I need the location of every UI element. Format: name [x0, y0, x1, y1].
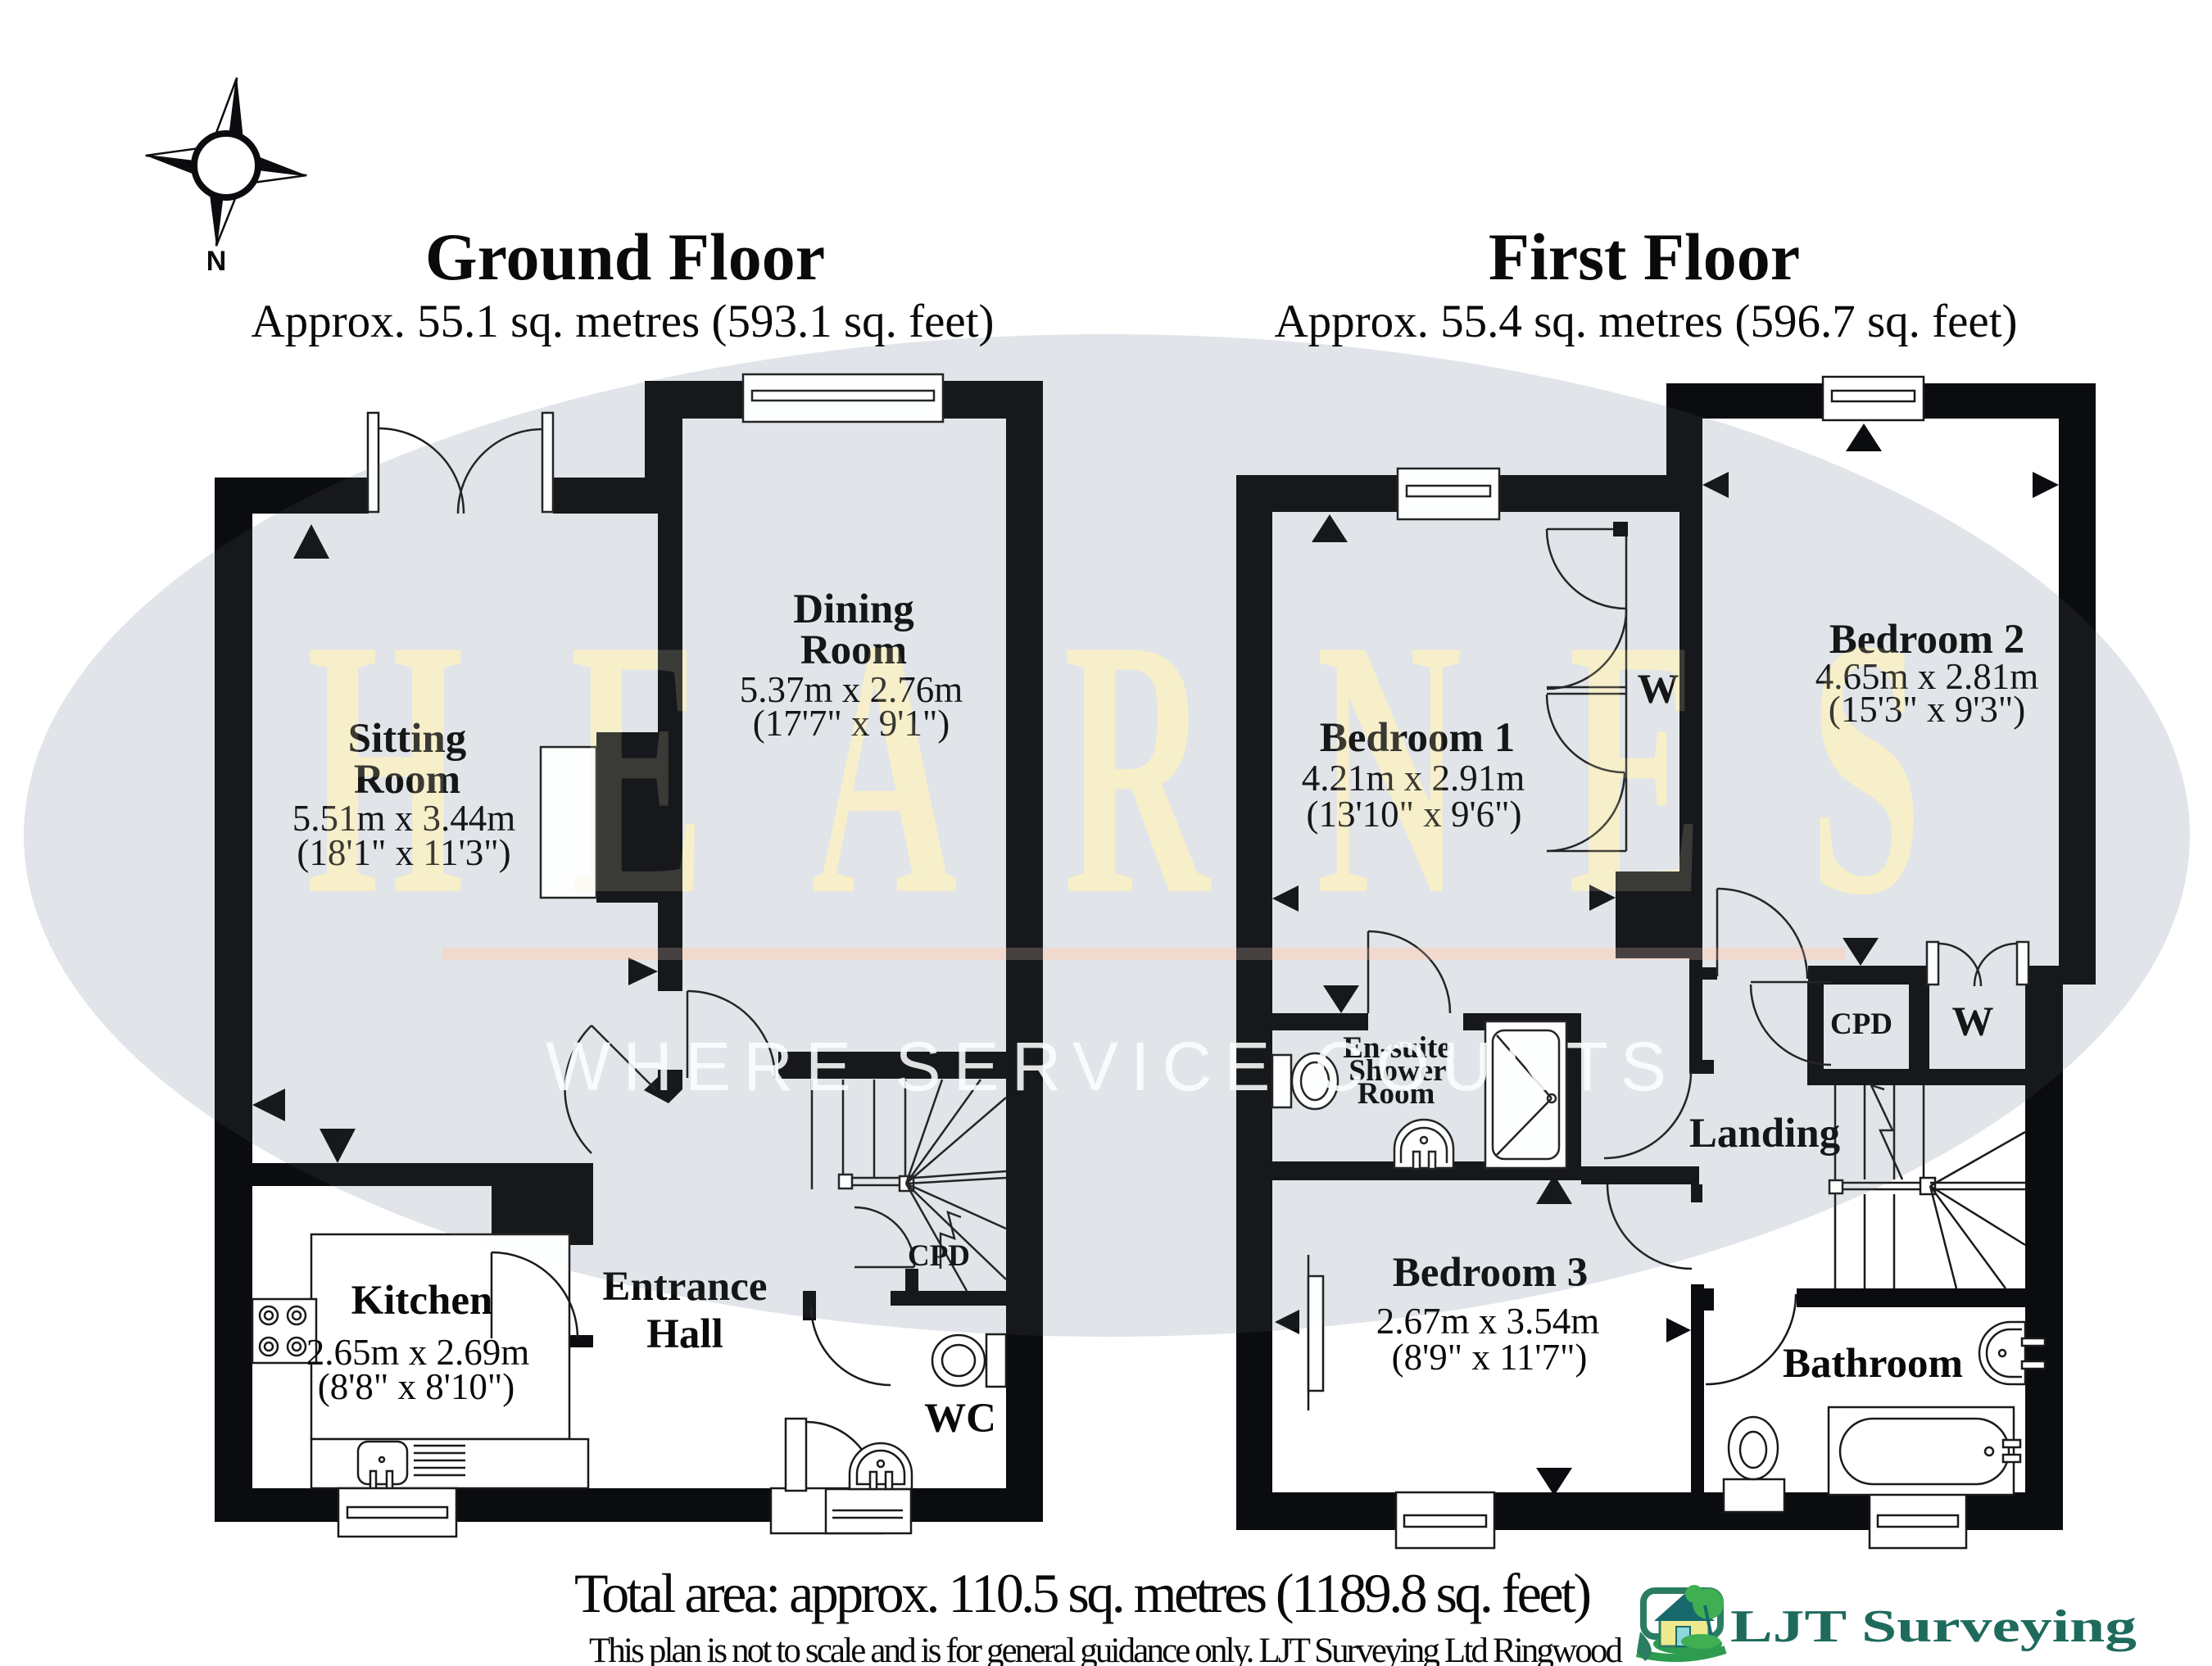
svg-text:N: N — [206, 246, 227, 277]
svg-text:This plan is not to scale and: This plan is not to scale and is for gen… — [589, 1632, 1623, 1666]
svg-text:Approx. 55.4 sq. metres (596.7: Approx. 55.4 sq. metres (596.7 sq. feet) — [1274, 296, 2017, 347]
svg-text:Bathroom: Bathroom — [1783, 1341, 1963, 1387]
svg-text:(8'9" x 11'7"): (8'9" x 11'7") — [1392, 1337, 1588, 1378]
svg-text:Kitchen: Kitchen — [351, 1278, 493, 1324]
svg-text:LJT Surveying: LJT Surveying — [1730, 1601, 2137, 1652]
svg-text:WC: WC — [924, 1396, 996, 1442]
svg-text:Approx. 55.1 sq. metres (593.1: Approx. 55.1 sq. metres (593.1 sq. feet) — [251, 296, 994, 347]
svg-text:Ground Floor: Ground Floor — [425, 220, 825, 294]
svg-text:Total area: approx. 110.5 sq.: Total area: approx. 110.5 sq. metres (11… — [574, 1562, 1592, 1624]
svg-text:(8'8" x 8'10"): (8'8" x 8'10") — [318, 1366, 514, 1407]
svg-text:First Floor: First Floor — [1489, 220, 1800, 294]
svg-text:Hall: Hall — [646, 1311, 723, 1357]
